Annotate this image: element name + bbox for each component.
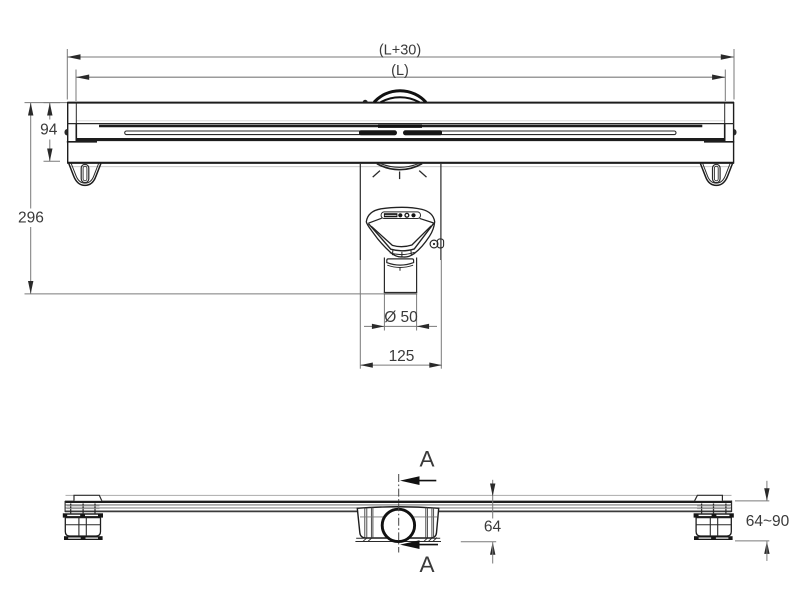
svg-text:A: A: [419, 552, 434, 577]
svg-text:(L): (L): [391, 63, 409, 79]
svg-text:64: 64: [484, 519, 502, 536]
svg-text:Ø 50: Ø 50: [384, 309, 418, 326]
svg-text:94: 94: [40, 122, 58, 139]
svg-text:296: 296: [18, 210, 44, 227]
svg-text:A: A: [419, 447, 434, 472]
svg-text:64~90: 64~90: [746, 513, 790, 530]
svg-text:(L+30): (L+30): [379, 43, 421, 59]
svg-text:125: 125: [389, 348, 415, 365]
